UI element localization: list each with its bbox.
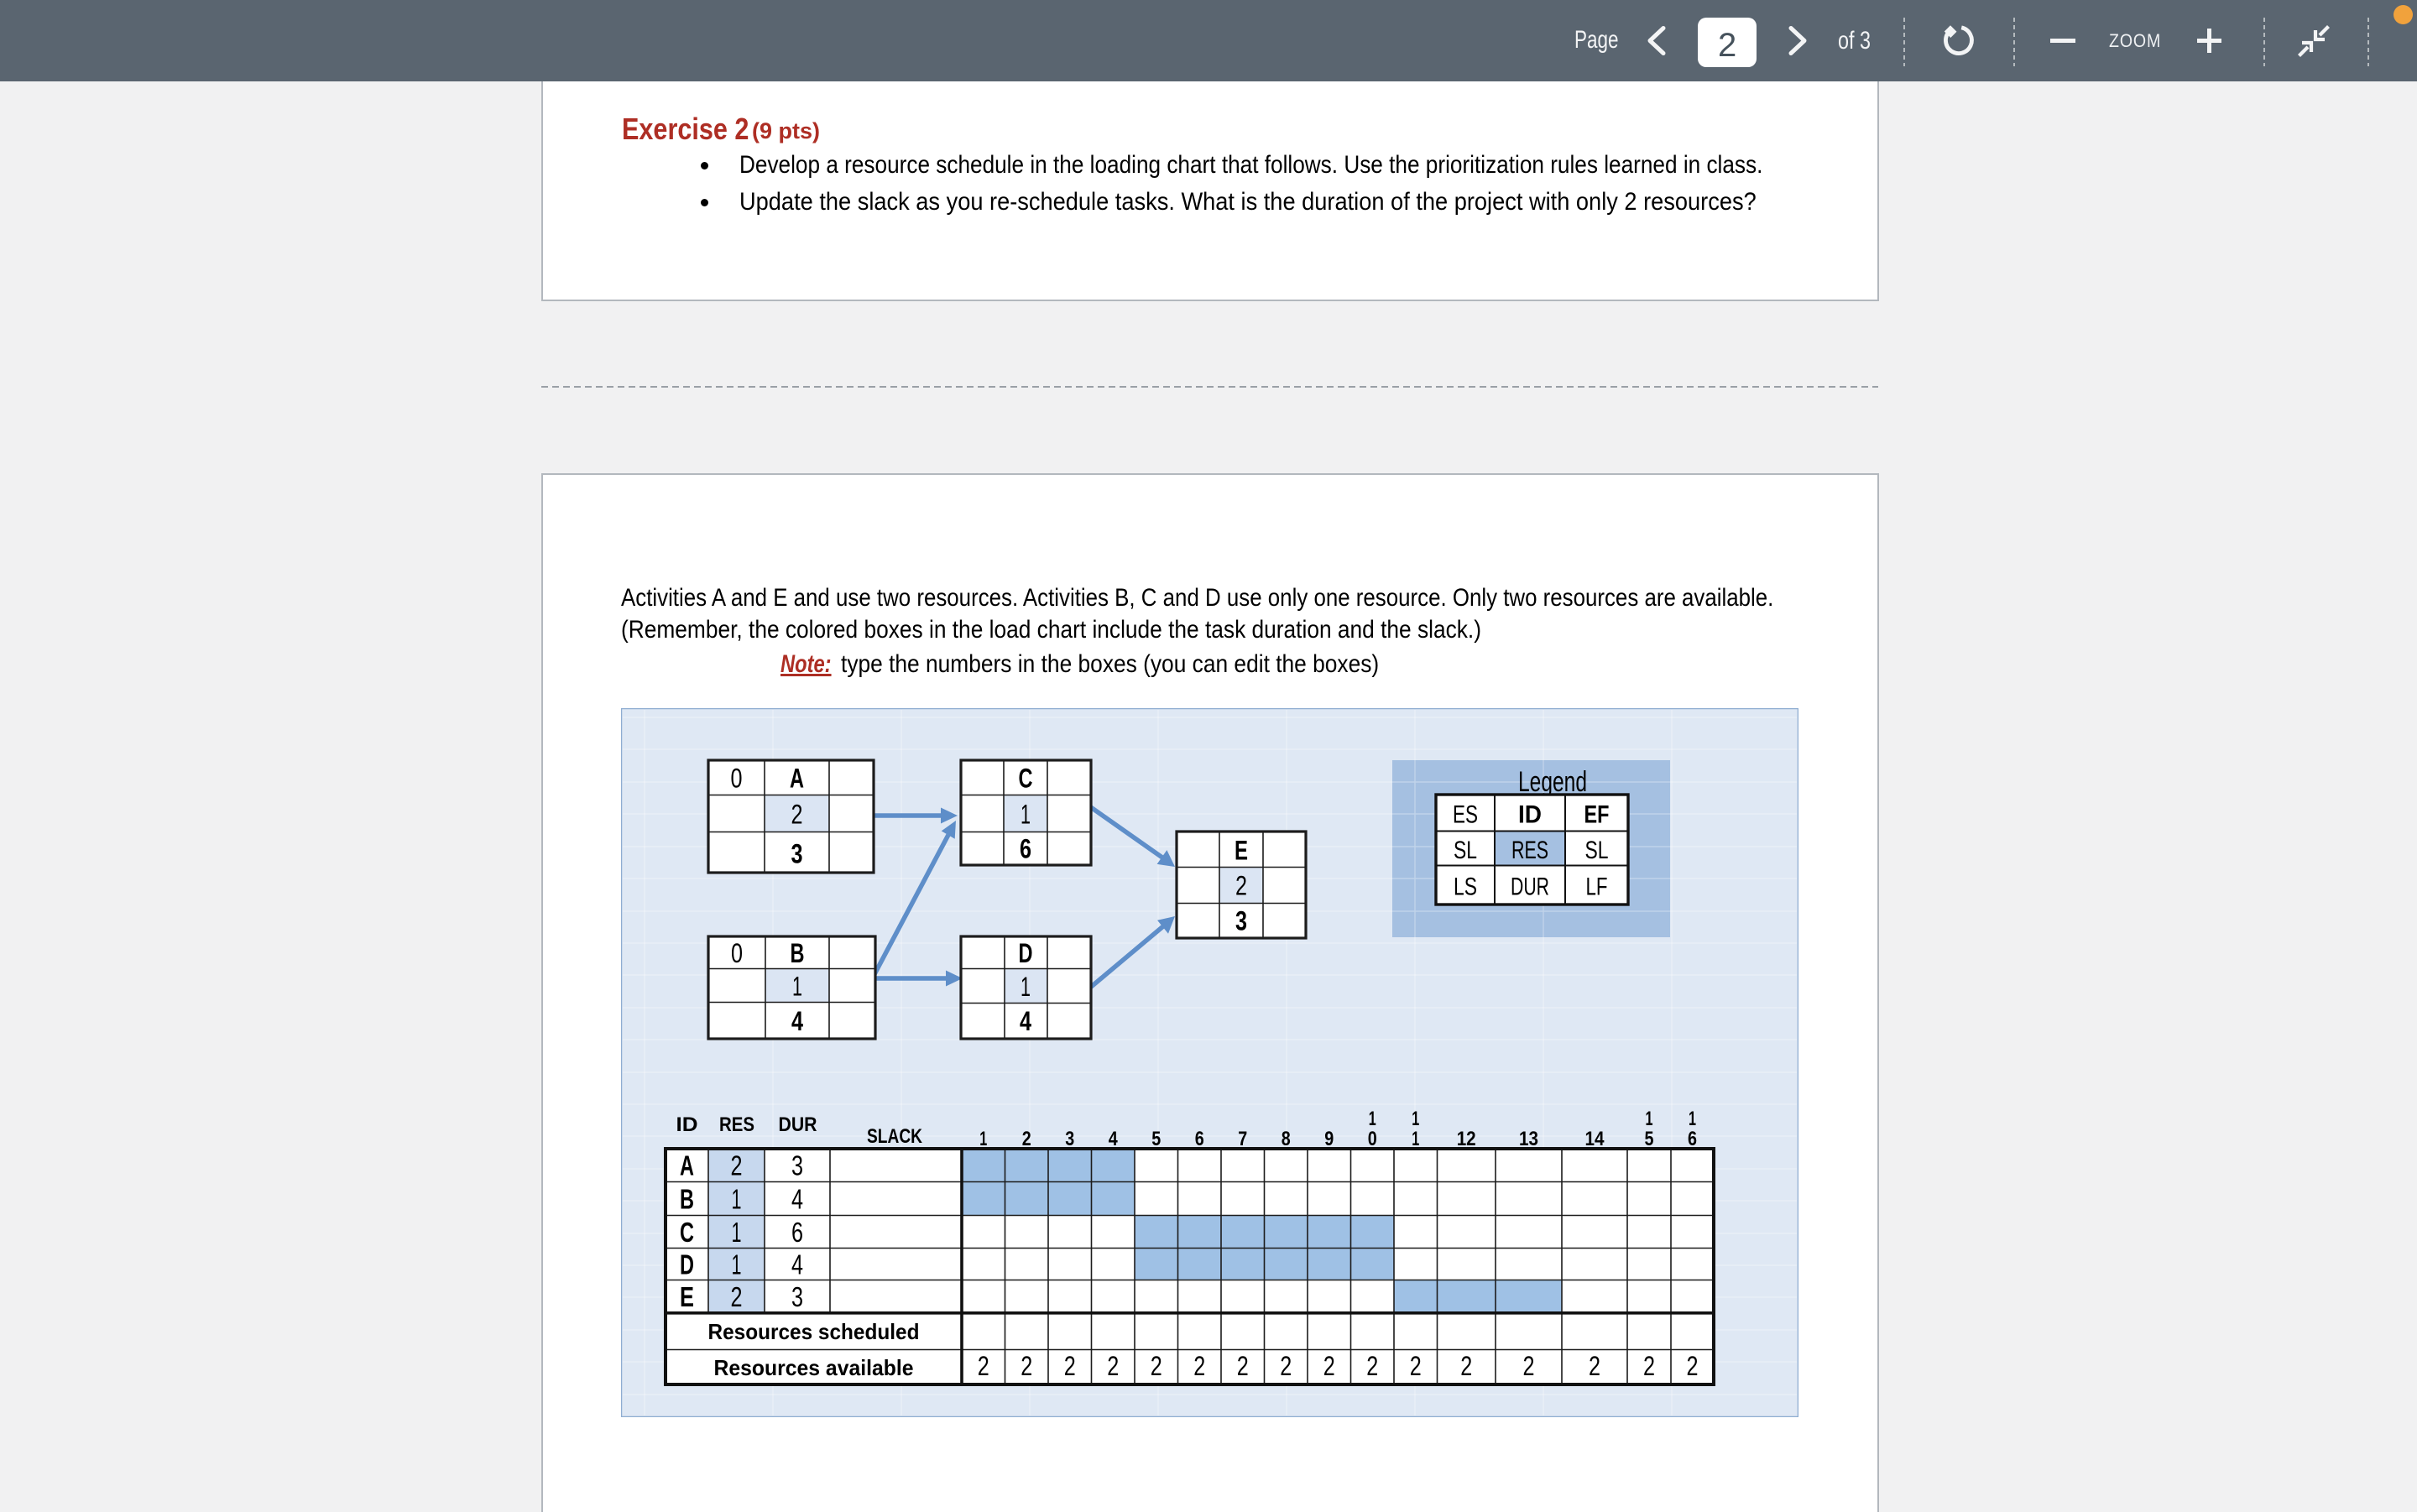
- svg-text:2: 2: [1589, 1351, 1600, 1381]
- svg-text:2: 2: [1021, 1351, 1032, 1381]
- svg-text:LS: LS: [1454, 873, 1477, 900]
- svg-text:ID: ID: [676, 1113, 698, 1136]
- svg-text:Resources available: Resources available: [714, 1355, 914, 1380]
- svg-text:2: 2: [1151, 1351, 1162, 1381]
- svg-text:7: 7: [1238, 1128, 1247, 1150]
- svg-text:2: 2: [1523, 1351, 1535, 1381]
- svg-text:5: 5: [1151, 1128, 1161, 1150]
- svg-text:1: 1: [979, 1128, 987, 1150]
- svg-text:1: 1: [1646, 1108, 1653, 1130]
- svg-text:2: 2: [1687, 1351, 1699, 1381]
- svg-text:8: 8: [1282, 1128, 1291, 1150]
- svg-text:1: 1: [1689, 1108, 1696, 1130]
- svg-text:1: 1: [1412, 1128, 1419, 1150]
- svg-text:1: 1: [732, 1183, 742, 1214]
- svg-text:2: 2: [1022, 1128, 1031, 1150]
- svg-text:4: 4: [791, 1006, 803, 1036]
- svg-text:3: 3: [1065, 1128, 1074, 1150]
- svg-text:SL: SL: [1454, 837, 1477, 864]
- svg-text:2: 2: [1193, 1351, 1205, 1381]
- svg-text:3: 3: [791, 838, 803, 868]
- svg-text:SLACK: SLACK: [867, 1125, 923, 1148]
- svg-text:1: 1: [1021, 799, 1031, 829]
- svg-text:2: 2: [1237, 1351, 1249, 1381]
- svg-text:1: 1: [732, 1249, 742, 1280]
- svg-text:9: 9: [1324, 1128, 1334, 1150]
- svg-text:4: 4: [791, 1249, 803, 1280]
- svg-text:E: E: [680, 1281, 694, 1312]
- svg-text:1: 1: [792, 971, 802, 1001]
- svg-text:6: 6: [1020, 833, 1031, 863]
- svg-text:2: 2: [1107, 1351, 1119, 1381]
- svg-text:2: 2: [1410, 1351, 1422, 1381]
- svg-text:6: 6: [791, 1217, 803, 1248]
- svg-text:DUR: DUR: [779, 1113, 817, 1136]
- svg-text:0: 0: [731, 763, 743, 793]
- svg-text:0: 0: [1368, 1128, 1377, 1150]
- svg-text:2: 2: [1643, 1351, 1655, 1381]
- svg-text:EF: EF: [1584, 800, 1610, 828]
- svg-text:1: 1: [1412, 1108, 1419, 1130]
- svg-text:3: 3: [791, 1281, 803, 1312]
- svg-text:6: 6: [1195, 1128, 1204, 1150]
- svg-text:B: B: [791, 938, 805, 968]
- svg-text:3: 3: [791, 1150, 803, 1181]
- svg-text:0: 0: [731, 938, 743, 968]
- svg-text:DUR: DUR: [1511, 873, 1549, 900]
- svg-text:2: 2: [1235, 870, 1247, 900]
- svg-text:12: 12: [1457, 1128, 1476, 1150]
- svg-text:ES: ES: [1453, 800, 1478, 828]
- svg-text:2: 2: [731, 1281, 743, 1312]
- svg-text:2: 2: [1323, 1351, 1335, 1381]
- svg-text:1: 1: [1369, 1108, 1376, 1130]
- svg-text:4: 4: [1020, 1006, 1031, 1036]
- svg-text:LF: LF: [1586, 873, 1608, 900]
- svg-text:SL: SL: [1585, 837, 1609, 864]
- svg-text:14: 14: [1585, 1128, 1605, 1150]
- svg-text:E: E: [1235, 835, 1248, 865]
- svg-text:2: 2: [731, 1150, 743, 1181]
- svg-text:2: 2: [1366, 1351, 1378, 1381]
- svg-text:D: D: [1019, 938, 1033, 968]
- svg-text:A: A: [680, 1150, 694, 1181]
- svg-text:2: 2: [1064, 1351, 1076, 1381]
- svg-text:2: 2: [978, 1351, 989, 1381]
- svg-text:ID: ID: [1518, 800, 1542, 828]
- svg-text:1: 1: [732, 1217, 742, 1248]
- svg-text:2: 2: [1280, 1351, 1292, 1381]
- svg-text:5: 5: [1645, 1128, 1654, 1150]
- svg-text:1: 1: [1021, 972, 1031, 1002]
- svg-text:RES: RES: [719, 1113, 754, 1136]
- svg-text:Resources scheduled: Resources scheduled: [708, 1319, 920, 1344]
- svg-text:A: A: [790, 763, 804, 793]
- svg-text:2: 2: [791, 799, 803, 829]
- svg-text:4: 4: [791, 1183, 803, 1214]
- svg-text:13: 13: [1519, 1128, 1538, 1150]
- svg-text:D: D: [680, 1249, 694, 1280]
- svg-text:C: C: [680, 1217, 694, 1248]
- svg-text:6: 6: [1688, 1128, 1697, 1150]
- svg-text:C: C: [1019, 763, 1033, 793]
- svg-text:B: B: [680, 1183, 694, 1214]
- svg-text:4: 4: [1109, 1128, 1119, 1150]
- svg-text:Legend: Legend: [1518, 766, 1587, 798]
- svg-text:2: 2: [1460, 1351, 1472, 1381]
- svg-text:3: 3: [1235, 905, 1247, 936]
- svg-text:RES: RES: [1511, 837, 1548, 864]
